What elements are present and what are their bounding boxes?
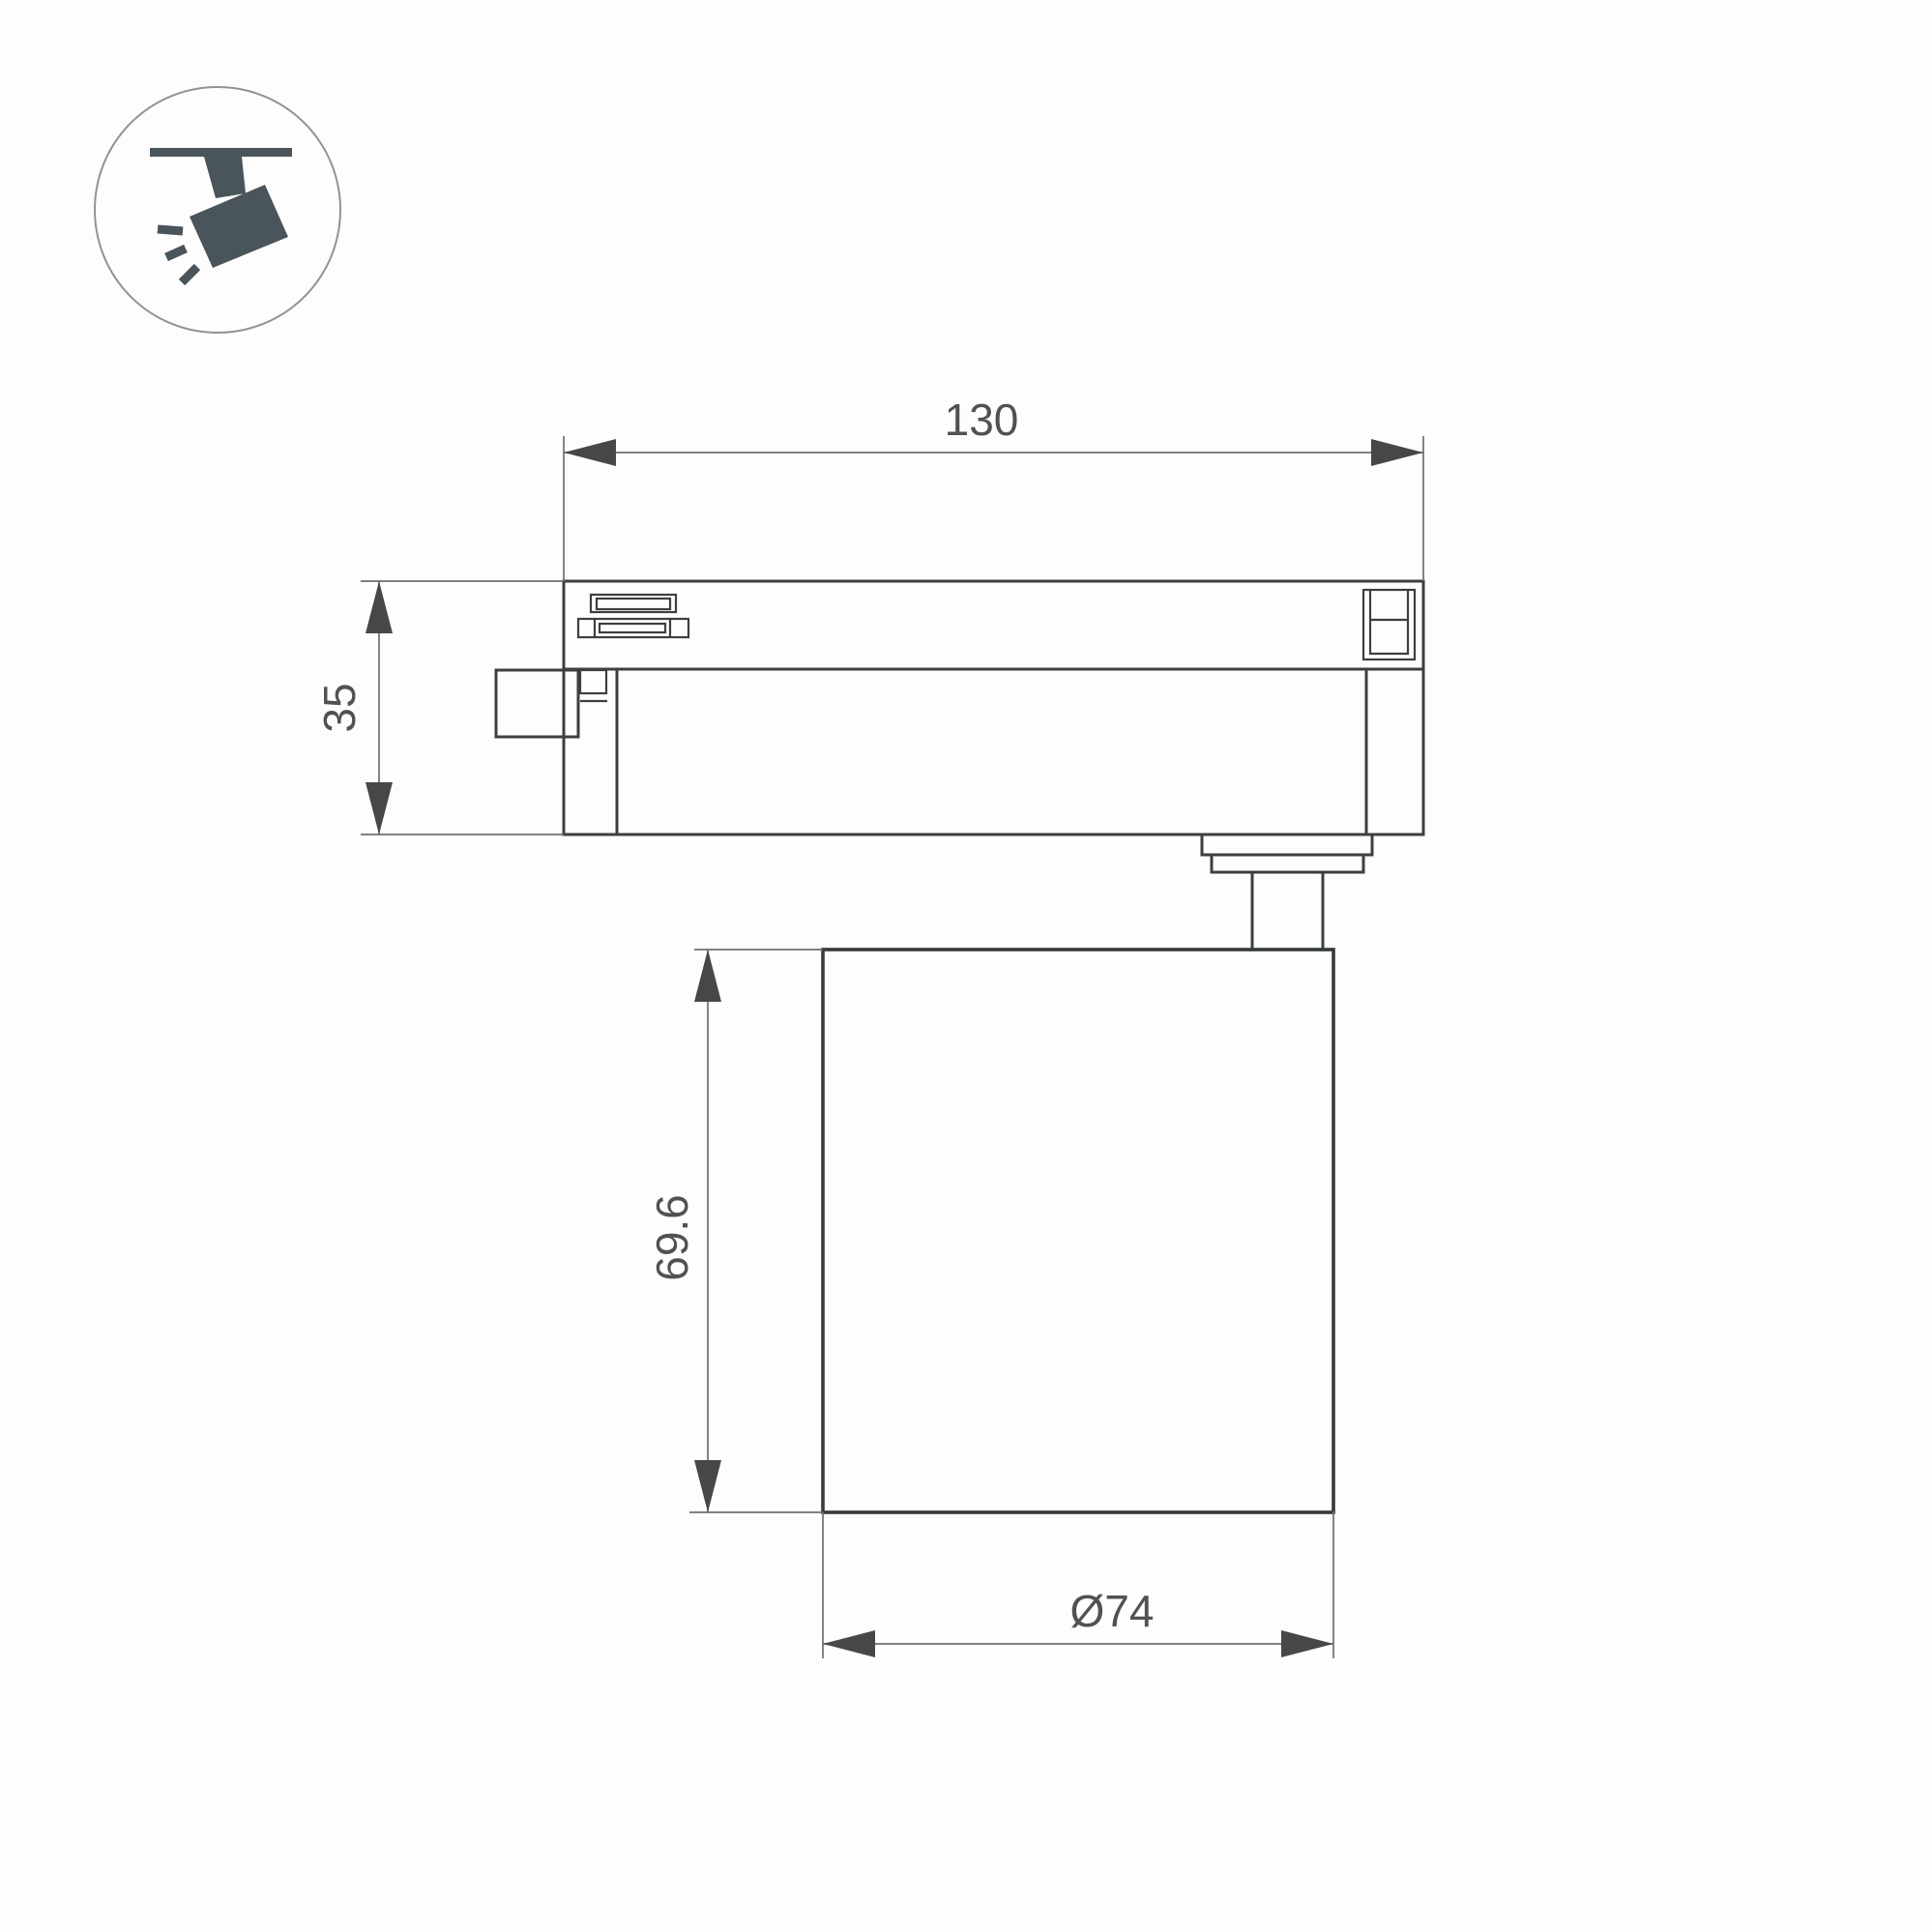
dimension-adapter-height: 35: [314, 581, 564, 834]
track-spotlight-icon: [95, 87, 340, 333]
lamp-body-outline: [823, 950, 1333, 1512]
lock-lever: [496, 670, 578, 737]
dimension-track-length: 130: [564, 395, 1423, 581]
extension-lines: [361, 581, 564, 834]
dimension-body-height: 69.6: [647, 950, 823, 1512]
arrow-right-icon: [1371, 439, 1423, 466]
adapter-outline: [564, 581, 1423, 834]
track-adapter: [496, 581, 1423, 834]
swivel-stem: [1252, 872, 1323, 950]
arrow-down-icon: [694, 1460, 721, 1512]
dimension-label-adapter-height: 35: [314, 683, 365, 732]
icon-light-ray-icon: [158, 229, 183, 231]
arrow-right-icon: [1281, 1630, 1333, 1657]
contact-slot-lower-dividers: [595, 619, 670, 637]
dimension-label-track-length: 130: [945, 395, 1019, 445]
extension-lines: [564, 436, 1423, 581]
arrow-up-icon: [694, 950, 721, 1002]
swivel-collar-upper: [1202, 834, 1372, 855]
contact-slot-lower-inner: [600, 624, 665, 632]
dimension-body-diameter: Ø74: [823, 1511, 1333, 1658]
icon-track-bar: [150, 148, 292, 157]
dimension-label-body-diameter: Ø74: [1070, 1586, 1155, 1636]
arrow-down-icon: [366, 782, 393, 834]
lock-latch: [580, 670, 606, 693]
dimension-label-body-height: 69.6: [647, 1194, 697, 1281]
arrow-left-icon: [564, 439, 616, 466]
dimension-drawing: 130 35 69.6 Ø74: [0, 0, 1932, 1932]
arrow-up-icon: [366, 581, 393, 633]
contact-slot-upper-inner: [597, 599, 670, 609]
extension-lines: [689, 950, 823, 1512]
lamp-assembly: [823, 834, 1372, 1512]
arrow-left-icon: [823, 1630, 875, 1657]
technical-drawing-page: 130 35 69.6 Ø74: [0, 0, 1932, 1932]
end-bracket-inner: [1370, 590, 1408, 654]
swivel-collar-lower: [1212, 855, 1363, 872]
extension-lines: [823, 1511, 1333, 1658]
